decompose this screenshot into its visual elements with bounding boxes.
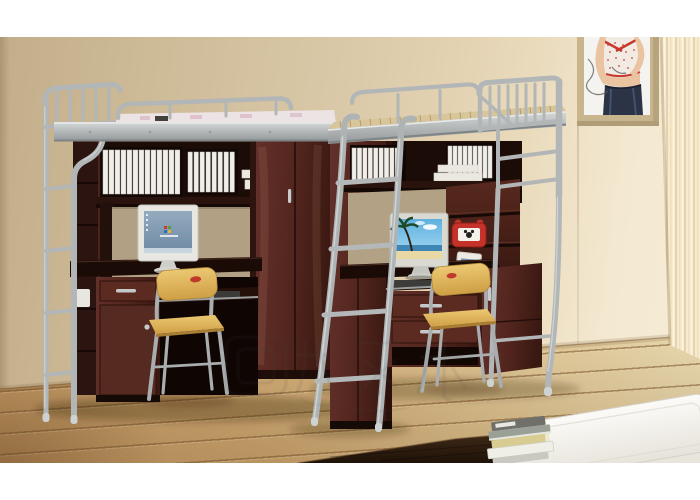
frame-foot	[43, 413, 50, 422]
binder-row-left-a	[101, 147, 183, 197]
scene-objects	[0, 37, 700, 463]
window-curtain	[660, 37, 700, 359]
door-knob	[144, 324, 149, 329]
frame-foot	[544, 387, 552, 396]
wardrobe-handle	[288, 189, 291, 203]
ladder-foot	[375, 423, 382, 432]
ladder-foot	[311, 417, 318, 426]
binder-row-left-b	[186, 149, 238, 195]
frame-foot	[487, 379, 494, 387]
headboard	[44, 84, 120, 127]
photo-area	[0, 37, 700, 463]
xp-taskbar	[144, 248, 192, 253]
loft-bed-desk-unit-left	[43, 84, 355, 424]
red-alarm-clock	[452, 220, 486, 248]
frame-foot	[71, 415, 78, 424]
book-stack	[484, 415, 555, 463]
bed-platform-left	[54, 98, 354, 141]
cabinet-handle	[488, 287, 491, 301]
small-white-device	[76, 289, 90, 307]
wardrobe	[250, 135, 334, 379]
drawer-handle	[116, 289, 136, 293]
product-photo	[0, 0, 700, 500]
chair-backrest	[431, 262, 491, 296]
side-ladder-rungs	[46, 186, 74, 375]
chair-backrest	[156, 267, 218, 301]
fashion-poster	[577, 37, 659, 126]
